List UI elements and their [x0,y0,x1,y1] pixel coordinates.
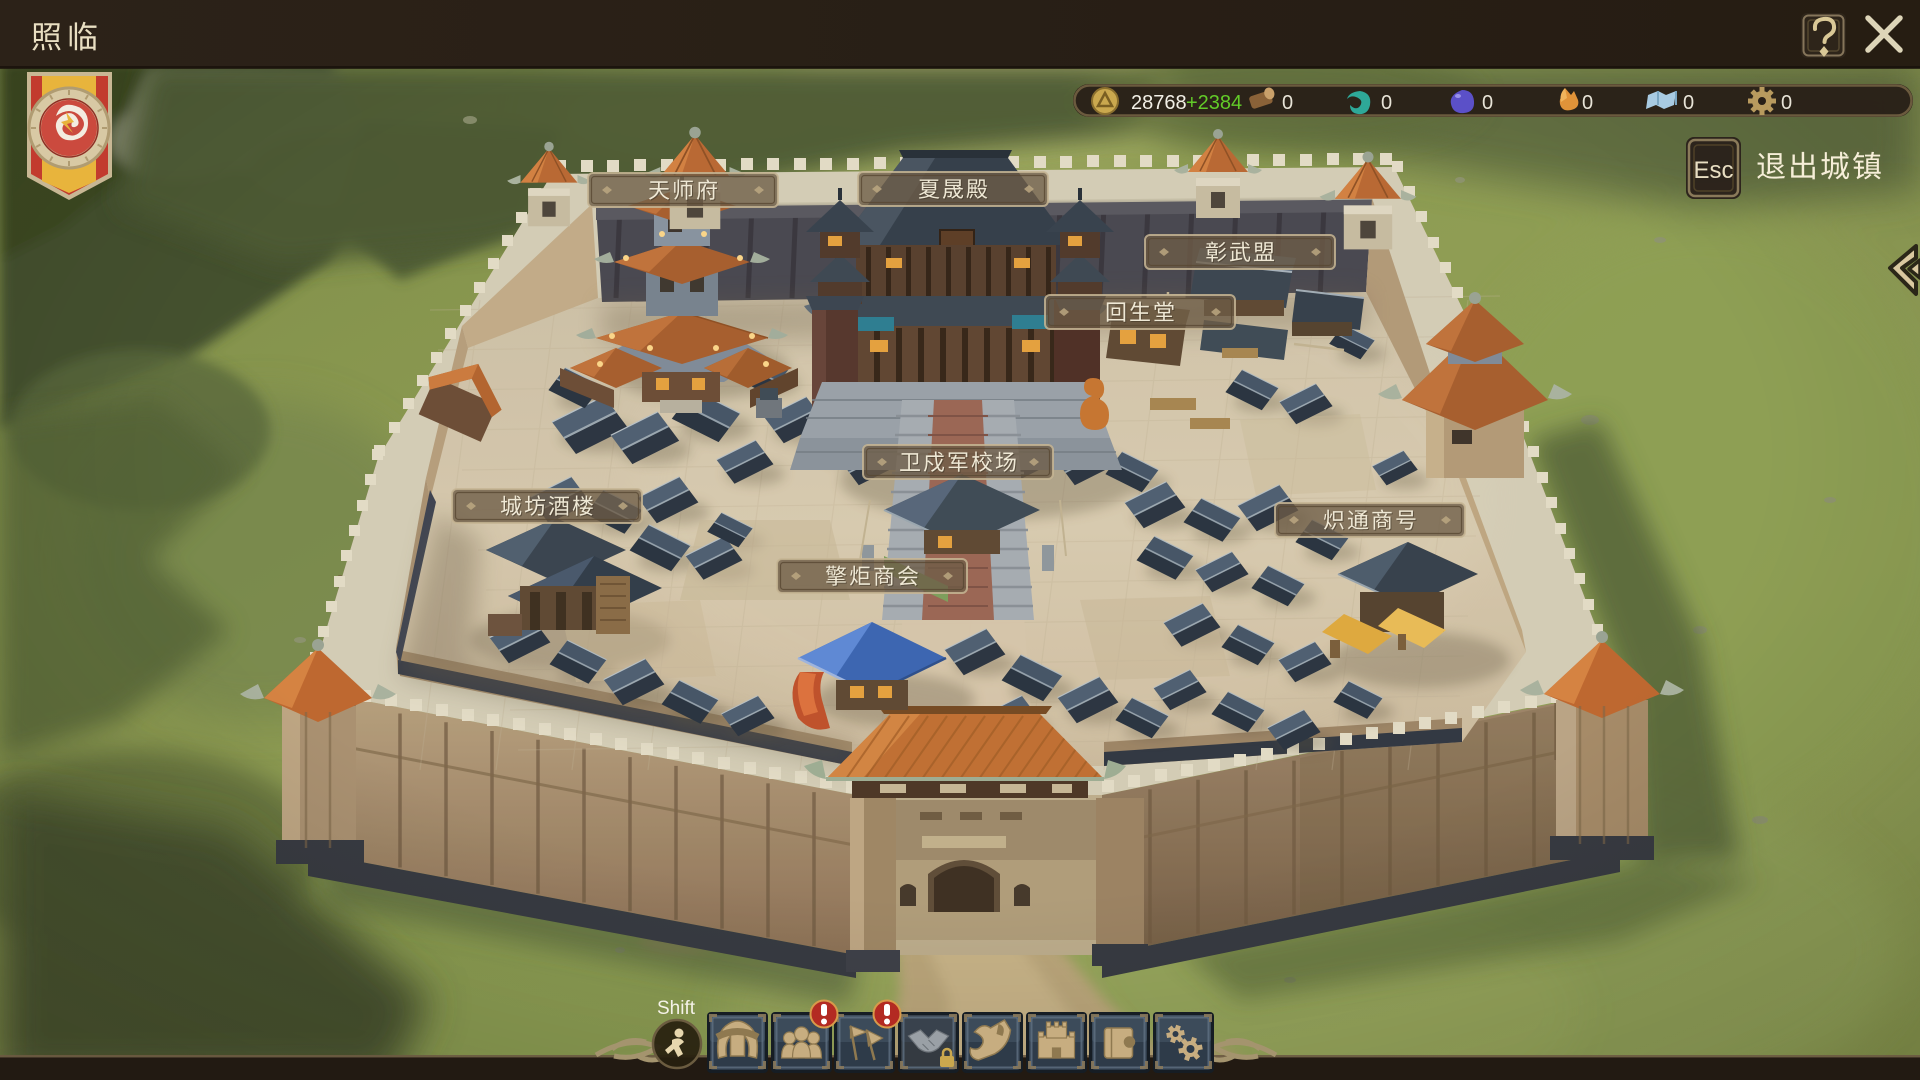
svg-text:0: 0 [1381,92,1392,114]
svg-text:Shift: Shift [657,998,696,1019]
svg-text:0: 0 [1781,92,1792,114]
svg-text:+2384: +2384 [1186,92,1242,114]
svg-text:0: 0 [1683,92,1694,114]
svg-text:Esc: Esc [1693,157,1733,184]
svg-text:0: 0 [1482,92,1493,114]
svg-text:0: 0 [1582,92,1593,114]
svg-text:0: 0 [1282,92,1293,114]
svg-text:28768: 28768 [1131,92,1187,114]
